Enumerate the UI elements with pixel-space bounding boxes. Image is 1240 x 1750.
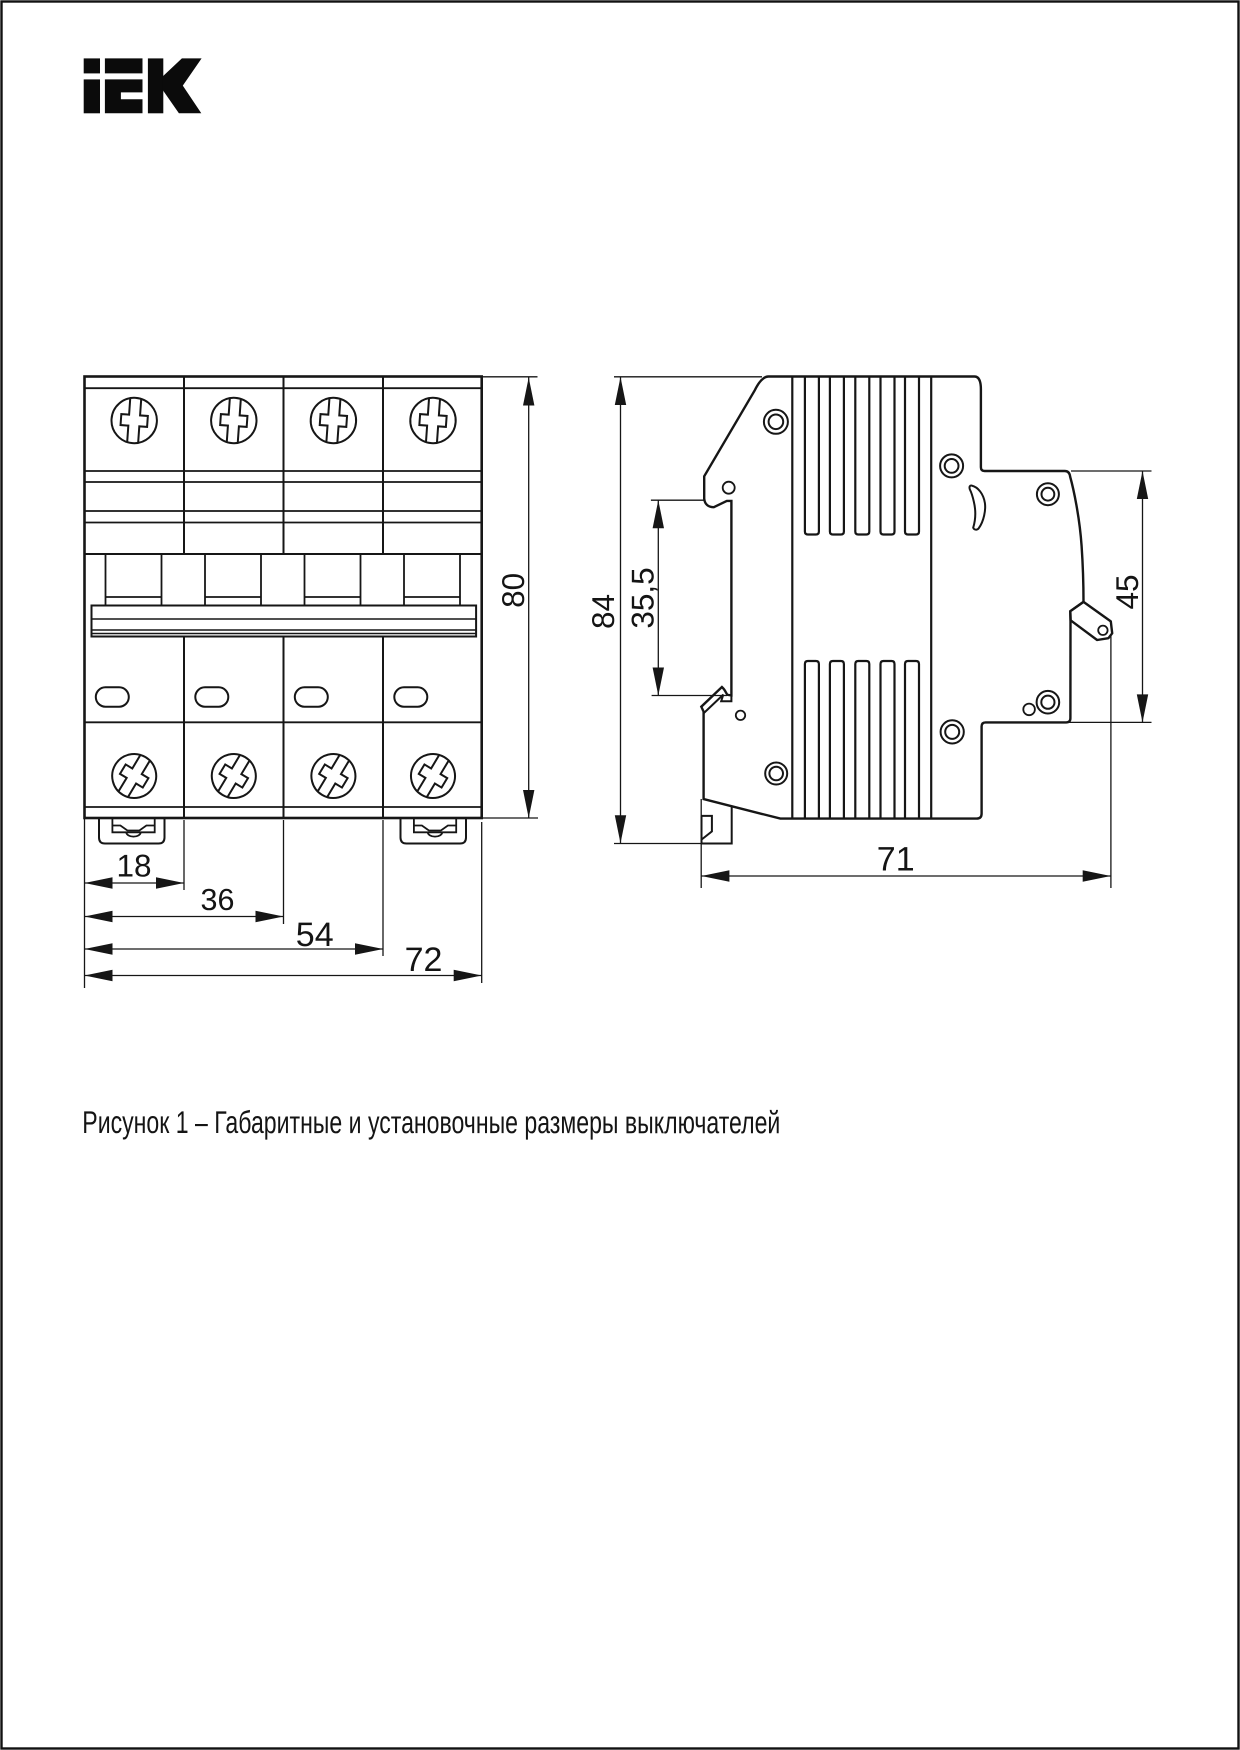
svg-text:71: 71 bbox=[877, 840, 915, 878]
svg-text:35,5: 35,5 bbox=[625, 567, 661, 628]
svg-text:72: 72 bbox=[405, 941, 443, 979]
svg-text:Рисунок 1 – Габаритные и устан: Рисунок 1 – Габаритные и установочные ра… bbox=[82, 1104, 780, 1140]
svg-text:84: 84 bbox=[585, 594, 621, 629]
svg-text:45: 45 bbox=[1109, 574, 1145, 609]
svg-text:54: 54 bbox=[296, 916, 334, 954]
svg-text:36: 36 bbox=[201, 883, 235, 917]
svg-text:80: 80 bbox=[495, 573, 531, 608]
svg-text:18: 18 bbox=[116, 847, 151, 883]
